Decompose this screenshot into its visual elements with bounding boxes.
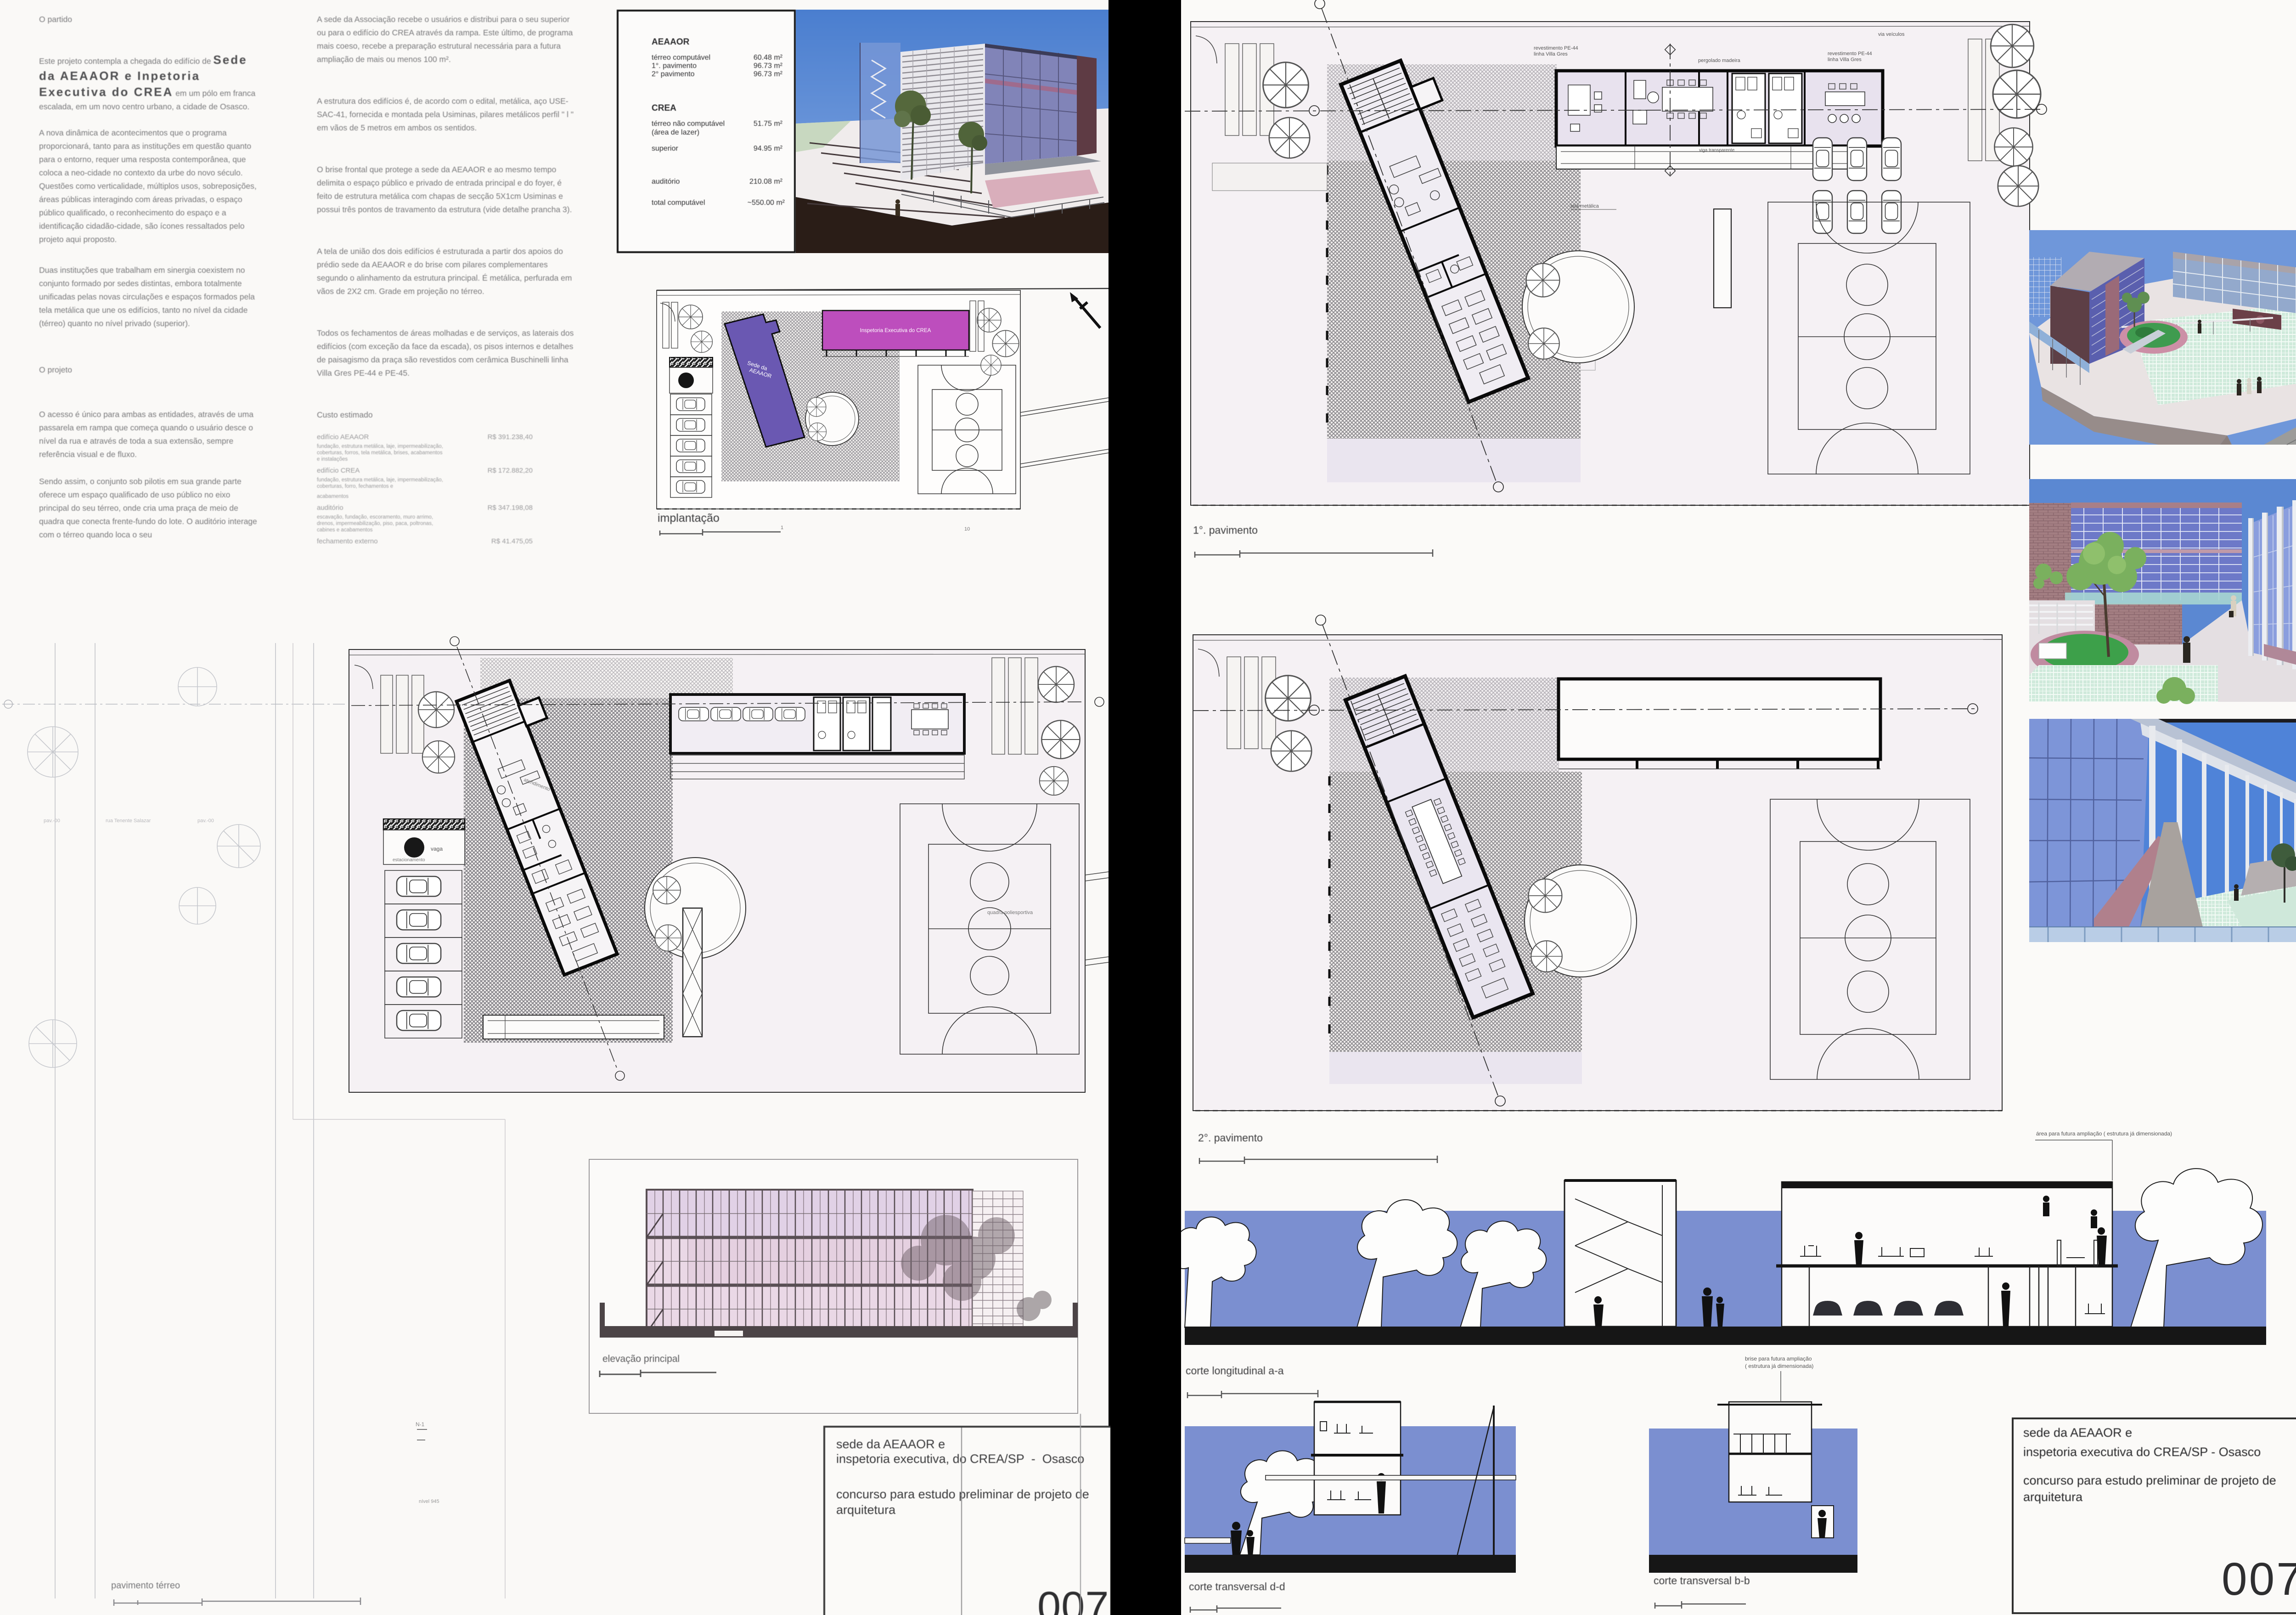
svg-text:revestimento PE-44: revestimento PE-44 (1828, 51, 1872, 56)
svg-text:Inspetoria Executiva do CREA: Inspetoria Executiva do CREA (860, 328, 931, 333)
svg-text:pav.-00: pav.-00 (197, 818, 214, 824)
svg-text:N-1: N-1 (416, 1421, 425, 1428)
svg-text:inspetoria executiva do CREA/: inspetoria executiva do CREA/SP - Osasco (2023, 1445, 2261, 1459)
svg-text:2°. pavimento: 2°. pavimento (1198, 1132, 1263, 1144)
svg-text:1: 1 (781, 525, 783, 531)
svg-text:1°. pavimento: 1°. pavimento (1193, 524, 1258, 536)
svg-text:007: 007 (2222, 1553, 2296, 1605)
svg-text:corte transversal d-d: corte transversal d-d (1189, 1581, 1285, 1592)
svg-text:corte longitudinal a-a: corte longitudinal a-a (1186, 1365, 1284, 1377)
svg-text:brise para futura ampliação: brise para futura ampliação (1745, 1355, 1812, 1362)
svg-text:estacionamento: estacionamento (393, 858, 425, 863)
svg-text:área para futura ampliação ( e: área para futura ampliação ( estrutura j… (2036, 1130, 2172, 1137)
svg-text:( estrutura já dimensionada): ( estrutura já dimensionada) (1745, 1363, 1813, 1369)
svg-text:nível 945: nível 945 (419, 1499, 439, 1504)
svg-text:pergolado madeira: pergolado madeira (1698, 58, 1741, 63)
svg-text:pav.-00: pav.-00 (44, 818, 60, 824)
svg-text:concurso para estudo prelimina: concurso para estudo preliminar de proje… (2023, 1474, 2276, 1487)
svg-text:corte transversal b-b: corte transversal b-b (1654, 1575, 1750, 1587)
svg-text:pavimento térreo: pavimento térreo (111, 1581, 180, 1591)
svg-text:quadra poliesportiva: quadra poliesportiva (987, 910, 1033, 915)
svg-text:rua Tenente Salazar: rua Tenente Salazar (106, 818, 151, 824)
svg-text:sede da AEAAOR e: sede da AEAAOR e (2023, 1426, 2132, 1440)
svg-text:via veículos: via veículos (1878, 32, 1905, 37)
svg-text:revestimento PE-44: revestimento PE-44 (1534, 45, 1578, 51)
svg-text:elevação principal: elevação principal (602, 1354, 680, 1364)
svg-text:viga transparente: viga transparente (1699, 148, 1735, 153)
svg-text:vaga: vaga (431, 846, 443, 852)
svg-text:10: 10 (964, 526, 970, 532)
svg-text:linha Villa Gres: linha Villa Gres (1828, 57, 1862, 62)
svg-text:linha Villa Gres: linha Villa Gres (1534, 51, 1568, 57)
svg-text:arquitetura: arquitetura (2023, 1490, 2083, 1504)
svg-text:implantação: implantação (658, 512, 720, 525)
svg-text:tela metálica: tela metálica (1570, 203, 1599, 209)
